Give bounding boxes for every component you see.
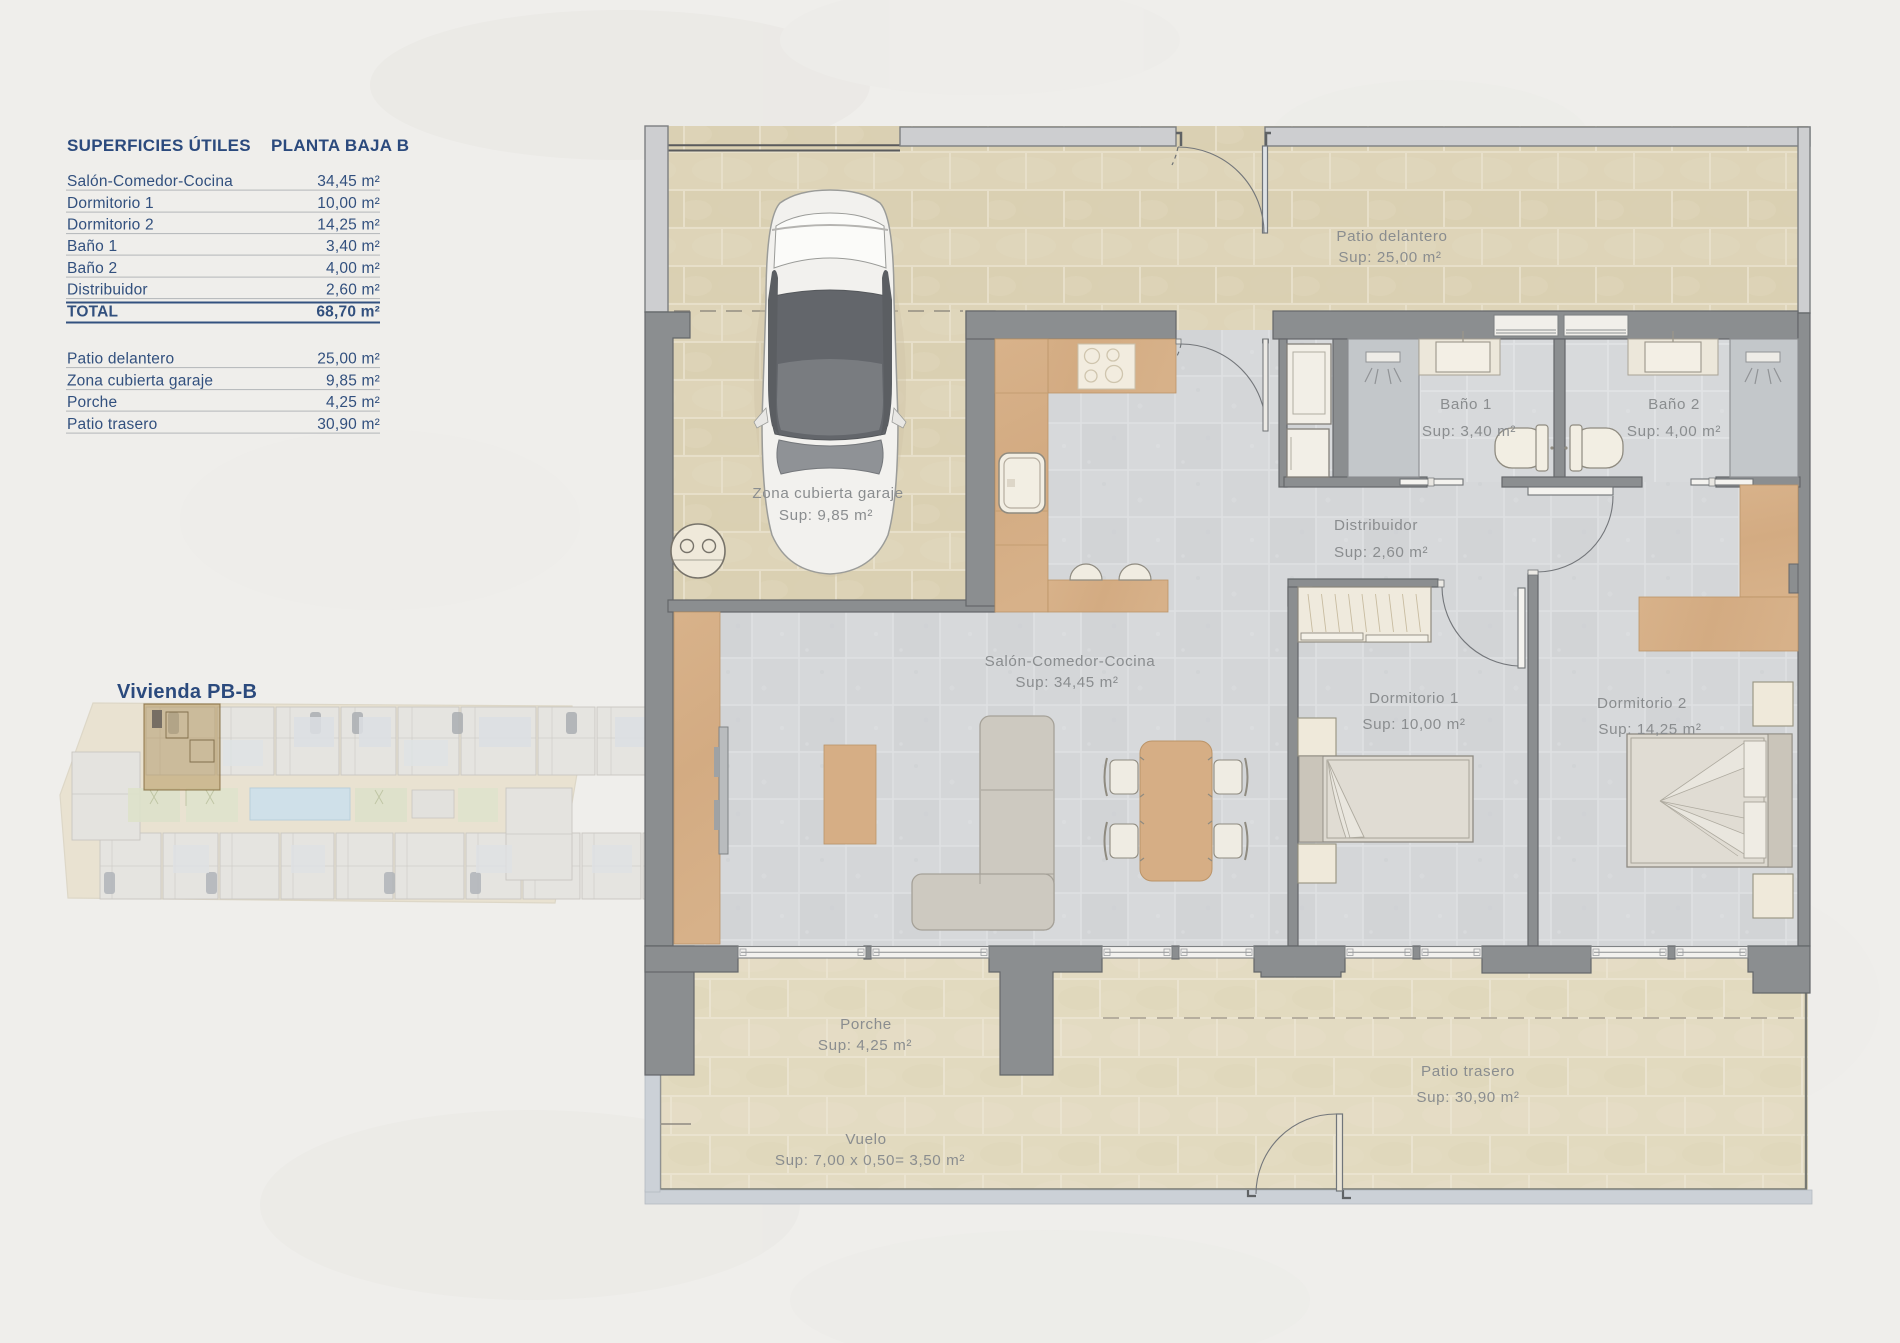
svg-text:Baño 2: Baño 2 [67, 260, 117, 277]
svg-text:10,00 m²: 10,00 m² [317, 195, 380, 212]
svg-text:Dormitorio 2: Dormitorio 2 [1597, 695, 1687, 712]
svg-text:Patio trasero: Patio trasero [67, 416, 157, 433]
svg-text:Sup: 4,00 m²: Sup: 4,00 m² [1627, 423, 1721, 440]
svg-text:Sup: 30,90 m²: Sup: 30,90 m² [1416, 1089, 1519, 1106]
svg-text:Porche: Porche [67, 394, 117, 411]
svg-text:Baño 1: Baño 1 [1440, 396, 1492, 413]
svg-text:Dormitorio 1: Dormitorio 1 [67, 195, 154, 212]
svg-text:Sup: 14,25 m²: Sup: 14,25 m² [1598, 721, 1701, 738]
svg-text:TOTAL: TOTAL [67, 304, 118, 321]
svg-text:PLANTA BAJA B: PLANTA BAJA B [271, 136, 409, 155]
svg-text:Sup: 10,00 m²: Sup: 10,00 m² [1362, 716, 1465, 733]
svg-text:30,90 m²: 30,90 m² [317, 416, 380, 433]
svg-text:Patio delantero: Patio delantero [67, 351, 174, 368]
svg-text:Distribuidor: Distribuidor [67, 282, 148, 299]
svg-text:Salón-Comedor-Cocina: Salón-Comedor-Cocina [985, 653, 1156, 670]
svg-text:Salón-Comedor-Cocina: Salón-Comedor-Cocina [67, 173, 233, 190]
svg-text:Sup: 2,60 m²: Sup: 2,60 m² [1334, 544, 1428, 561]
svg-text:Patio delantero: Patio delantero [1336, 228, 1447, 245]
svg-text:2,60 m²: 2,60 m² [326, 282, 380, 299]
svg-text:25,00 m²: 25,00 m² [317, 351, 380, 368]
svg-text:Baño 2: Baño 2 [1648, 396, 1700, 413]
svg-text:Zona cubierta garaje: Zona cubierta garaje [752, 485, 903, 502]
svg-text:Distribuidor: Distribuidor [1334, 517, 1418, 534]
svg-text:Zona cubierta garaje: Zona cubierta garaje [67, 373, 213, 390]
svg-text:Sup: 3,40 m²: Sup: 3,40 m² [1422, 423, 1516, 440]
svg-text:Porche: Porche [840, 1016, 892, 1033]
svg-text:68,70 m²: 68,70 m² [316, 304, 380, 321]
svg-text:Sup: 25,00 m²: Sup: 25,00 m² [1338, 249, 1441, 266]
svg-text:SUPERFICIES ÚTILES: SUPERFICIES ÚTILES [67, 136, 251, 155]
svg-text:Vuelo: Vuelo [845, 1131, 886, 1148]
svg-text:4,00 m²: 4,00 m² [326, 260, 380, 277]
svg-text:Patio trasero: Patio trasero [1421, 1063, 1515, 1080]
svg-text:Sup: 9,85 m²: Sup: 9,85 m² [779, 507, 873, 524]
svg-text:Sup: 34,45 m²: Sup: 34,45 m² [1015, 674, 1118, 691]
svg-text:3,40 m²: 3,40 m² [326, 238, 380, 255]
svg-text:34,45 m²: 34,45 m² [317, 173, 380, 190]
svg-text:Dormitorio 1: Dormitorio 1 [1369, 690, 1459, 707]
svg-text:4,25 m²: 4,25 m² [326, 394, 380, 411]
svg-text:Sup: 7,00 x 0,50= 3,50 m²: Sup: 7,00 x 0,50= 3,50 m² [775, 1152, 965, 1169]
svg-text:Dormitorio 2: Dormitorio 2 [67, 217, 154, 234]
svg-text:14,25 m²: 14,25 m² [317, 217, 380, 234]
svg-text:Vivienda PB-B: Vivienda PB-B [117, 681, 257, 703]
svg-text:Sup: 4,25 m²: Sup: 4,25 m² [818, 1037, 912, 1054]
svg-text:Baño 1: Baño 1 [67, 238, 117, 255]
svg-text:9,85 m²: 9,85 m² [326, 373, 380, 390]
